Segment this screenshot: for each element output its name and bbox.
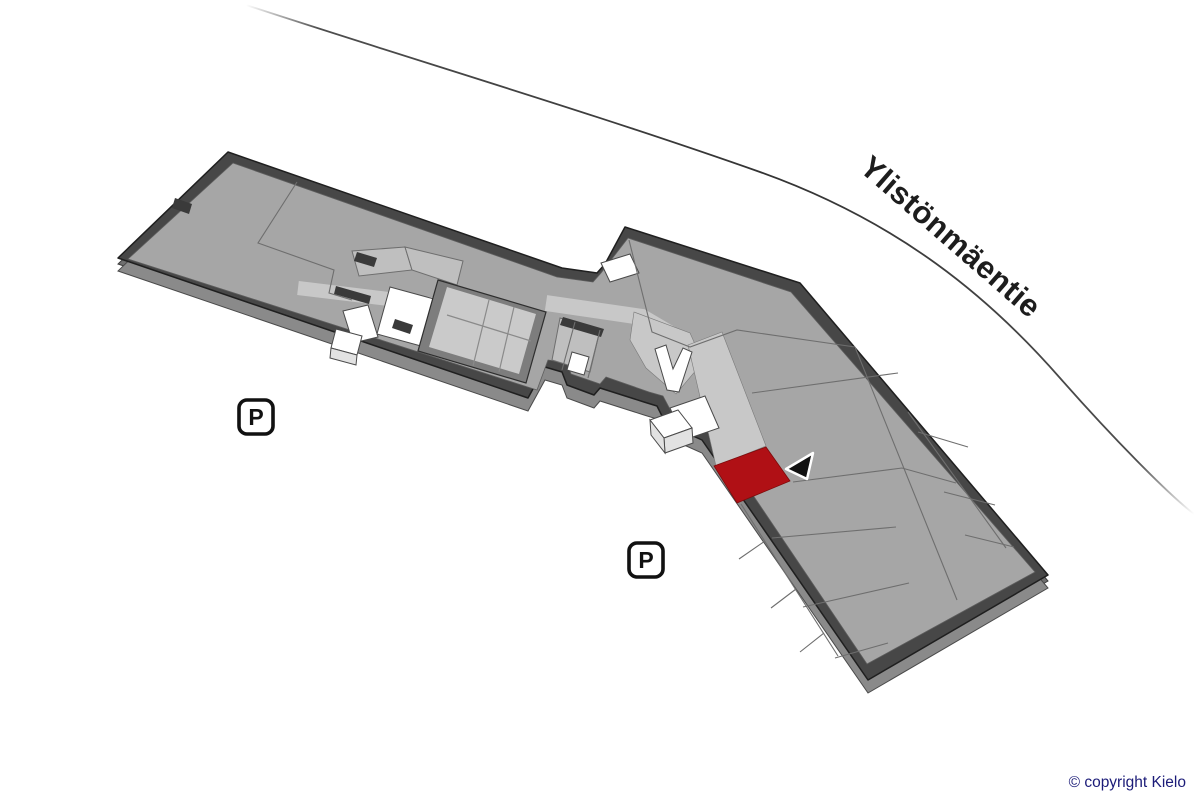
floorplan-map: Ylistönmäentie [0,0,1200,800]
floorplan-page: Ylistönmäentie [0,0,1200,800]
parking-badge-label: P [638,547,653,573]
parking-badge-icon-2: P [629,543,663,577]
copyright-text: © copyright Kielo [1069,774,1186,792]
road-label: Ylistönmäentie [853,149,1048,325]
parking-badge-label: P [248,404,263,430]
parking-badge-icon-1: P [239,400,273,434]
